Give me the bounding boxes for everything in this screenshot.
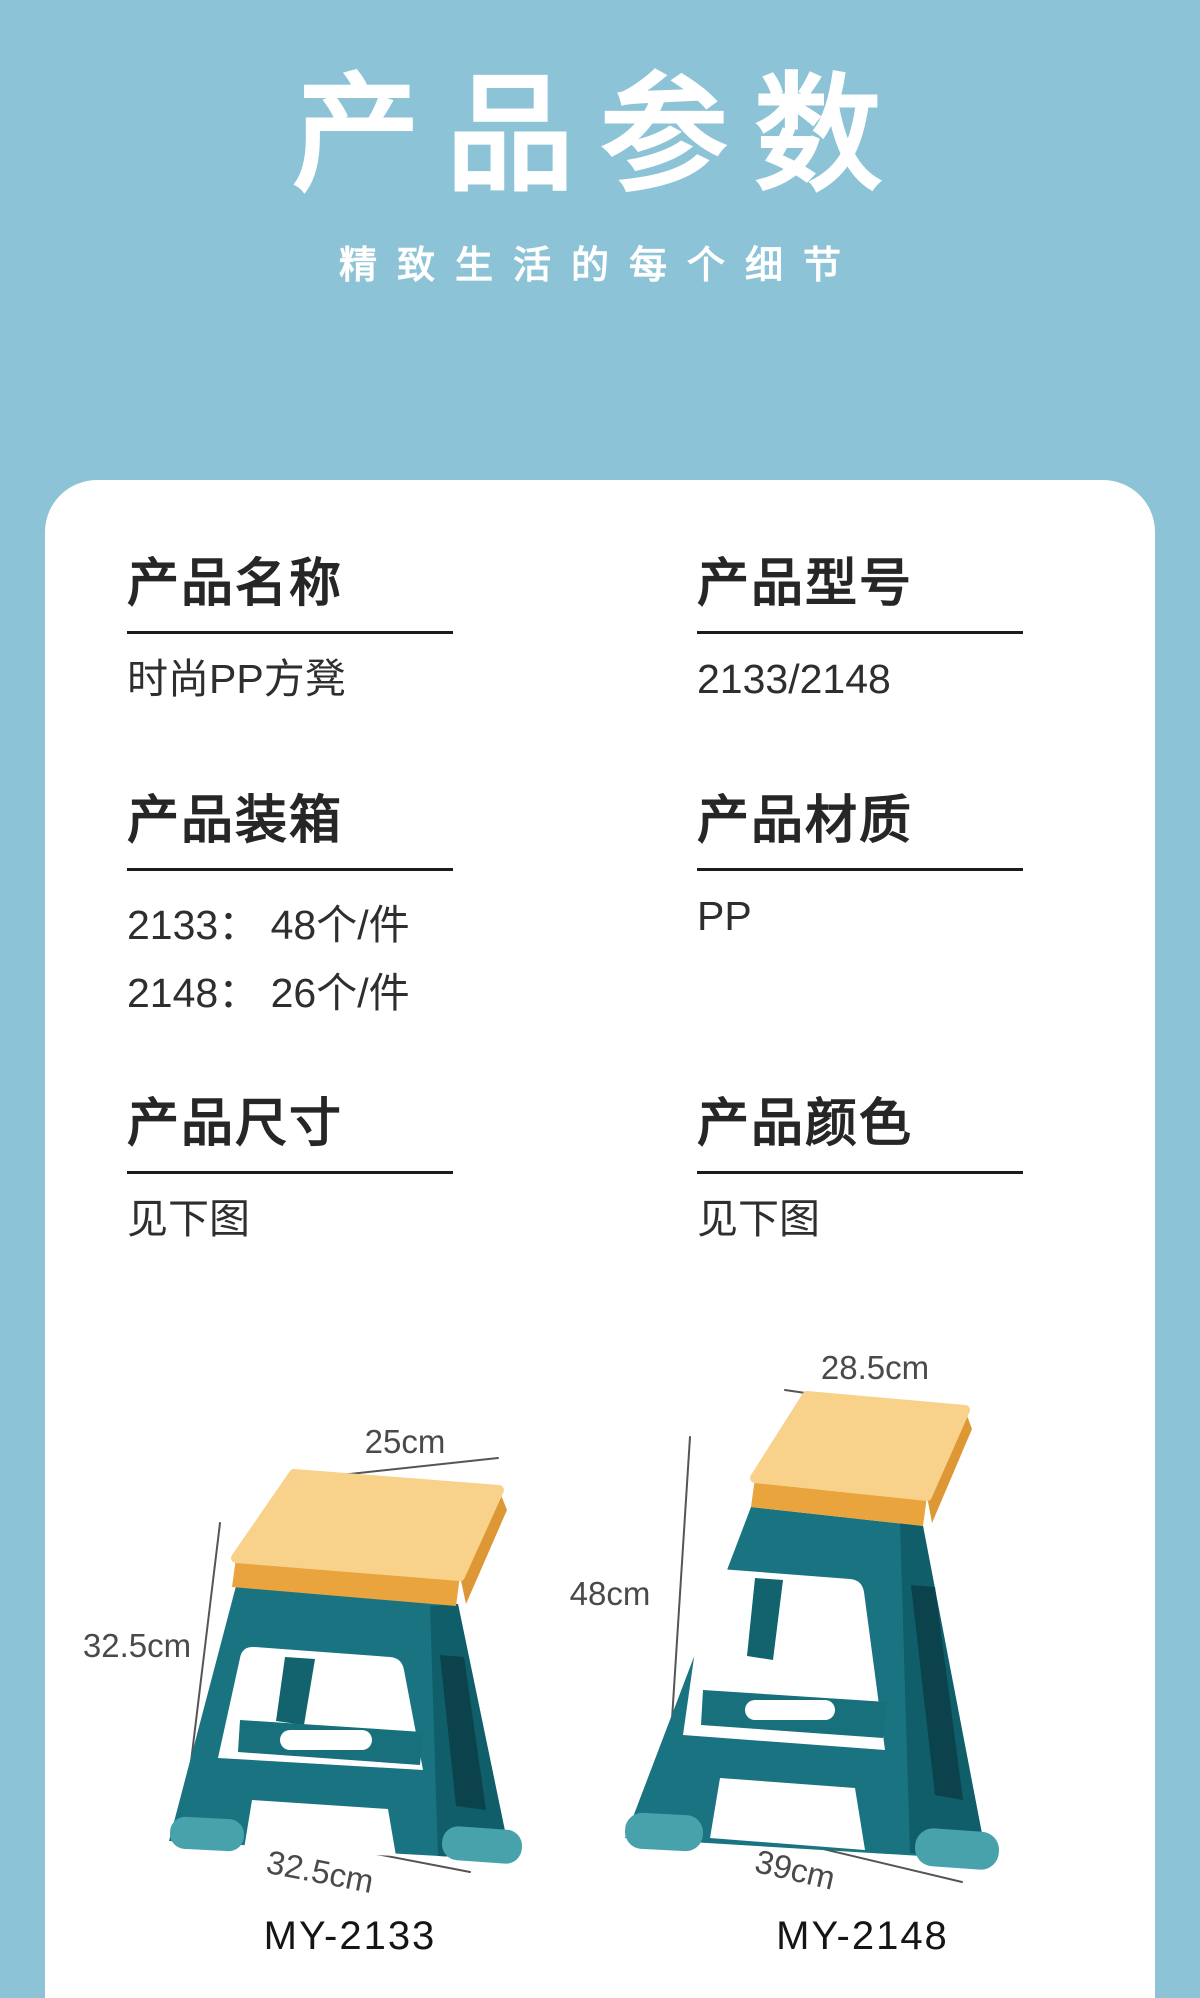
stool-2148-height-label: 48cm [550, 1576, 670, 1612]
spec-value: 时尚PP方凳 [127, 654, 607, 705]
spec-product-model: 产品型号 2133/2148 [697, 553, 1177, 705]
spec-product-name: 产品名称 时尚PP方凳 [127, 553, 607, 705]
spec-value-line: 2148： 26个/件 [127, 959, 607, 1027]
spec-product-packing: 产品装箱 2133： 48个/件 2148： 26个/件 [127, 790, 607, 1027]
spec-heading: 产品名称 [127, 553, 607, 615]
stool-2148-top-width-label: 28.5cm [800, 1350, 950, 1386]
spec-value: 见下图 [127, 1194, 607, 1245]
heading-underline [697, 1171, 1023, 1174]
page-subtitle: 精致生活的每个细节 [0, 244, 1200, 290]
spec-value-line: 2133： 48个/件 [127, 891, 607, 959]
spec-heading: 产品装箱 [127, 790, 607, 852]
heading-underline [127, 868, 453, 871]
stool-2133-height-label: 32.5cm [57, 1628, 217, 1664]
product-parameters-page: 产品参数 精致生活的每个细节 产品名称 时尚PP方凳 产品型号 2133/214… [0, 0, 1200, 1998]
stool-2148-model-label: MY-2148 [765, 1914, 960, 1959]
page-title: 产品参数 [0, 66, 1200, 207]
stool-2133-top-width-label: 25cm [340, 1424, 470, 1460]
spec-value: 见下图 [697, 1194, 1177, 1245]
spec-heading: 产品尺寸 [127, 1093, 607, 1155]
heading-underline [697, 631, 1023, 634]
spec-product-size: 产品尺寸 见下图 [127, 1093, 607, 1245]
spec-product-material: 产品材质 PP [697, 790, 1177, 942]
heading-underline [697, 868, 1023, 871]
spec-value: PP [697, 891, 1177, 942]
stool-2133-model-label: MY-2133 [255, 1914, 445, 1959]
spec-heading: 产品材质 [697, 790, 1177, 852]
heading-underline [127, 1171, 453, 1174]
spec-heading: 产品型号 [697, 553, 1177, 615]
spec-product-color: 产品颜色 见下图 [697, 1093, 1177, 1245]
heading-underline [127, 631, 453, 634]
spec-value: 2133/2148 [697, 654, 1177, 705]
spec-heading: 产品颜色 [697, 1093, 1177, 1155]
